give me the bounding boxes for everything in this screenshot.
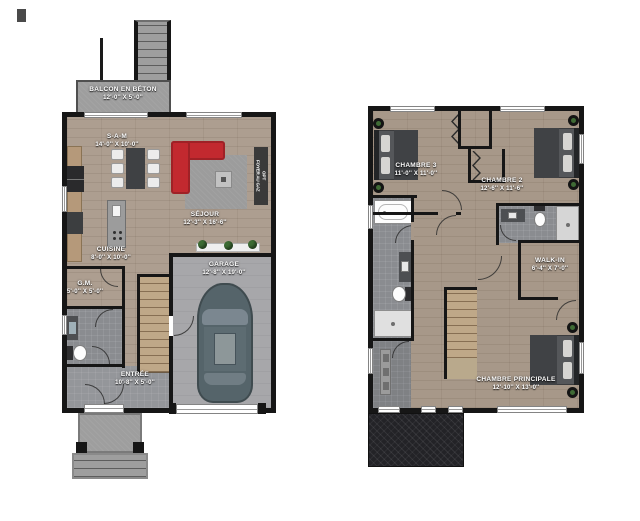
- master-name: CHAMBRE PRINCIPALE: [460, 376, 572, 384]
- label-living: SÉJOUR 12'-3'' X 16'-6'': [160, 211, 250, 227]
- balcony-name: BALCON EN BÉTON: [74, 86, 172, 94]
- walkin-name: WALK-IN: [520, 257, 580, 265]
- plant-icon: [376, 121, 381, 126]
- sofa-icon: [171, 141, 190, 194]
- nightstand-icon: [568, 179, 579, 190]
- garage-entry-door: [169, 316, 173, 336]
- sink-icon: [112, 205, 121, 217]
- duvet: [534, 128, 559, 178]
- drain-icon: [391, 322, 395, 326]
- pantry-name: G.M.: [57, 280, 113, 288]
- stove-icon: [67, 212, 83, 234]
- bedroom2-name: CHAMBRE 2: [462, 177, 542, 185]
- window: [62, 186, 67, 212]
- window: [421, 406, 436, 413]
- nightstand-icon: [373, 118, 384, 129]
- wall: [169, 403, 176, 414]
- window: [579, 342, 584, 374]
- window: [497, 406, 567, 413]
- living-dims: 12'-3'' X 16'-6'': [160, 220, 250, 227]
- porch-post: [76, 442, 87, 453]
- wall: [458, 111, 461, 149]
- stair-treads: [447, 290, 477, 358]
- car-roof: [204, 327, 246, 371]
- wall: [67, 364, 125, 367]
- nightstand-icon: [373, 182, 384, 193]
- wall: [67, 266, 125, 269]
- chair-icon: [147, 177, 160, 188]
- vanity-icon: [399, 252, 411, 282]
- label-entry: ENTRÉE 10'-8'' X 5'-0'': [100, 371, 170, 387]
- label-dining: S-A-M 14'-0'' X 10'-0'': [77, 133, 157, 149]
- pillow-icon: [563, 340, 572, 357]
- toilet-icon: [534, 212, 546, 227]
- label-bedroom3: CHAMBRE 3 11'-0'' X 11'-0'': [378, 162, 454, 178]
- fireplace-note: OPT: [262, 171, 267, 180]
- wall: [373, 338, 414, 341]
- dining-table-icon: [126, 148, 145, 189]
- chair-icon: [111, 177, 124, 188]
- entry-name: ENTRÉE: [100, 371, 170, 379]
- plant-icon: [571, 182, 576, 187]
- patio-door: [84, 112, 148, 118]
- plant-icon: [224, 241, 233, 250]
- sink-icon: [69, 322, 76, 334]
- label-garage: GARAGE 12'-8'' X 19'-0'': [185, 261, 263, 277]
- cooktop-icon: [113, 231, 116, 234]
- appliance-icon: [383, 354, 389, 362]
- wall: [258, 403, 266, 414]
- balcony-dims: 12'-0'' X 5'-0'': [74, 95, 172, 102]
- living-name: SÉJOUR: [160, 211, 250, 219]
- label-pantry: G.M. 5'-0'' X 5'-0'': [57, 280, 113, 296]
- wall: [137, 274, 171, 277]
- appliance-icon: [383, 382, 389, 390]
- bedroom3-name: CHAMBRE 3: [378, 162, 454, 170]
- porch-steps: [72, 453, 148, 479]
- exterior-stairs: [134, 20, 171, 82]
- window: [368, 205, 373, 229]
- plant-icon: [376, 185, 381, 190]
- plant-icon: [248, 240, 257, 249]
- wall: [496, 203, 582, 206]
- kitchen-dims: 8'-0'' X 10'-0'': [76, 255, 146, 262]
- car-icon: [197, 283, 253, 403]
- porch-roof-texture: [368, 413, 464, 467]
- bedroom2-dims: 12'-6'' X 11'-6'': [462, 186, 542, 193]
- garage-dims: 12'-8'' X 19'-0'': [185, 270, 263, 277]
- kitchen-counter-icon: [67, 146, 82, 262]
- dining-name: S-A-M: [77, 133, 157, 141]
- toilet-icon: [73, 345, 87, 361]
- fireplace-bar: FOYER AU GAZ OPT: [254, 147, 268, 205]
- window: [378, 406, 400, 413]
- bedroom3-dims: 11'-0'' X 11'-0'': [378, 171, 454, 178]
- window: [186, 112, 242, 118]
- floorplan-canvas: BALCON EN BÉTON 12'-0'' X 5'-0'': [0, 0, 640, 521]
- vanity-icon: [67, 316, 78, 340]
- kitchen-name: CUISINE: [76, 246, 146, 254]
- shower-icon: [374, 310, 412, 337]
- sink-icon: [508, 212, 517, 219]
- door-opening: [438, 212, 456, 215]
- car-sunroof: [214, 333, 236, 365]
- plan-upper-floor: CHAMBRE 3 11'-0'' X 11'-0'' CHAMBRE 2 12…: [320, 0, 640, 521]
- decor-icon: [221, 177, 226, 182]
- site-marker: [17, 9, 26, 22]
- wall: [67, 306, 125, 309]
- plant-icon: [571, 118, 576, 123]
- label-balcony: BALCON EN BÉTON 12'-0'' X 5'-0'': [74, 86, 172, 102]
- porch-post: [133, 442, 144, 453]
- sink-icon: [401, 261, 409, 272]
- wall: [411, 195, 414, 340]
- label-master: CHAMBRE PRINCIPALE 12'-10'' X 13'-0'': [460, 376, 572, 392]
- window: [448, 406, 463, 413]
- shower-icon: [556, 206, 579, 243]
- nightstand-icon: [568, 115, 579, 126]
- master-dims: 12'-10'' X 13'-0'': [460, 385, 572, 392]
- wall: [496, 203, 499, 245]
- pantry-dims: 5'-0'' X 5'-0'': [57, 289, 113, 296]
- label-walkin: WALK-IN 6'-4'' X 7'-0'': [520, 257, 580, 273]
- wall: [137, 274, 140, 373]
- label-kitchen: CUISINE 8'-0'' X 10'-0'': [76, 246, 146, 262]
- fireplace-label: FOYER AU GAZ: [256, 160, 261, 191]
- pillow-icon: [381, 135, 390, 152]
- toilet-tank-icon: [534, 206, 545, 211]
- stairs-ground-icon: [140, 277, 169, 373]
- nightstand-icon: [567, 322, 578, 333]
- refrigerator-icon: [67, 166, 84, 192]
- window: [579, 134, 584, 164]
- toilet-icon: [392, 286, 406, 302]
- entry-dims: 10'-8'' X 5'-0'': [100, 380, 170, 387]
- chair-icon: [111, 163, 124, 174]
- stairs-upper-icon: [444, 287, 477, 379]
- window: [390, 106, 435, 112]
- chair-icon: [147, 163, 160, 174]
- wall: [518, 297, 558, 300]
- pillow-icon: [563, 155, 572, 172]
- car-windshield: [202, 309, 248, 325]
- bed-icon: [534, 128, 579, 178]
- wall: [122, 266, 125, 368]
- kitchen-island-icon: [107, 200, 126, 248]
- wall: [518, 240, 579, 243]
- garage-name: GARAGE: [185, 261, 263, 269]
- window: [62, 315, 67, 335]
- laundry-counter-icon: [380, 349, 391, 395]
- window: [500, 106, 545, 112]
- pillow-icon: [563, 133, 572, 150]
- chair-icon: [147, 149, 160, 160]
- wall: [489, 111, 492, 149]
- drain-icon: [566, 223, 570, 227]
- dining-dims: 14'-0'' X 10'-0'': [77, 142, 157, 149]
- car-rear-window: [204, 373, 246, 385]
- plant-icon: [570, 325, 575, 330]
- window: [368, 348, 373, 374]
- coffee-table-icon: [215, 171, 232, 188]
- plant-icon: [198, 240, 207, 249]
- garage-door: [176, 404, 258, 414]
- wall: [458, 146, 492, 149]
- plan-ground-floor: BALCON EN BÉTON 12'-0'' X 5'-0'': [0, 0, 320, 521]
- walkin-dims: 6'-4'' X 7'-0'': [520, 266, 580, 273]
- chair-icon: [111, 149, 124, 160]
- vanity-icon: [501, 209, 525, 222]
- label-bedroom2: CHAMBRE 2 12'-6'' X 11'-6'': [462, 177, 542, 193]
- bifold-door-icon: [472, 151, 481, 180]
- appliance-icon: [383, 368, 389, 376]
- property-line: [100, 38, 103, 80]
- door-opening: [411, 222, 414, 240]
- front-door: [84, 404, 124, 413]
